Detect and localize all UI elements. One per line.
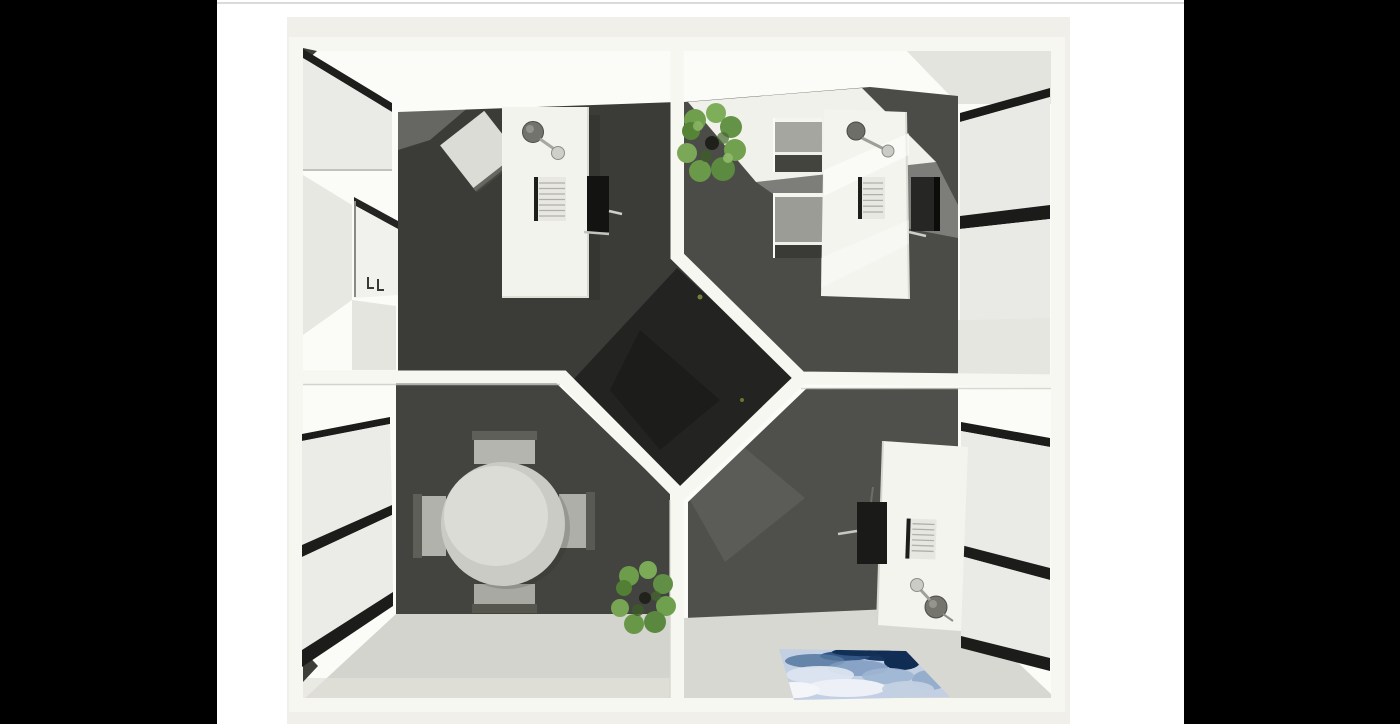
tr-lamp-base bbox=[847, 122, 865, 140]
tr-shelf2-underside bbox=[773, 245, 825, 258]
bl-plant-shadow-leaf-2 bbox=[651, 591, 661, 601]
tr-shelf1-underside bbox=[773, 155, 822, 172]
br-monitor bbox=[857, 502, 887, 564]
tl-lamp-head bbox=[552, 147, 565, 160]
bl-plant-shadow-leaf-1 bbox=[632, 604, 644, 616]
tr-plant-shadow-leaf-1 bbox=[700, 150, 712, 162]
tl-keyboard-keys bbox=[539, 183, 565, 216]
tl-monitor bbox=[587, 176, 609, 232]
center-core-speck-2 bbox=[740, 398, 744, 402]
tr-plant-leaf-6 bbox=[689, 160, 711, 182]
tl-keyboard-edge bbox=[534, 177, 538, 221]
center-core-speck-1 bbox=[698, 295, 703, 300]
bl-chair-right-back bbox=[586, 492, 595, 550]
floorplan-render bbox=[0, 0, 1400, 724]
br-keyboard-keys-row-6 bbox=[912, 551, 934, 552]
br-window-pane-1 bbox=[961, 431, 1050, 568]
bl-round-table-sheen bbox=[444, 466, 548, 566]
bl-plant-leaf-6 bbox=[624, 614, 644, 634]
tr-plant-pot bbox=[705, 136, 719, 150]
screenshot-root bbox=[0, 0, 1400, 724]
bl-plant-leaf-5 bbox=[644, 611, 666, 633]
br-keyboard-keys-row-2 bbox=[912, 529, 934, 530]
bl-chair-bottom-back bbox=[472, 604, 537, 613]
br-keyboard-keys-row-5 bbox=[912, 545, 934, 546]
tr-shelf2-mid-edge bbox=[773, 242, 825, 245]
bl-plant-leaf-2 bbox=[639, 561, 657, 579]
bl-plant-leaf-8 bbox=[616, 580, 632, 596]
tr-shelf2-top-edge bbox=[773, 193, 825, 197]
bl-plant-leaf-7 bbox=[611, 599, 629, 617]
br-keyboard-keys-row-1 bbox=[913, 524, 935, 525]
right-wall-shadow-mid bbox=[958, 316, 1050, 378]
br-lamp-head bbox=[911, 579, 924, 592]
tr-lamp-head bbox=[882, 145, 894, 157]
br-rug-light-4 bbox=[882, 681, 934, 697]
bl-plant-pot bbox=[639, 592, 651, 604]
bl-chair-left-back bbox=[413, 494, 422, 558]
bl-chair-top-seat bbox=[474, 440, 535, 464]
left-wall-shadow-lower bbox=[352, 300, 396, 370]
br-lamp-highlight bbox=[929, 600, 937, 608]
tr-plant-leaf-highlight-2 bbox=[693, 121, 703, 131]
tr-keyboard-edge bbox=[858, 177, 862, 219]
tr-shelf2-body bbox=[773, 197, 825, 242]
tr-plant-leaf-7 bbox=[677, 143, 697, 163]
tr-monitor-dark-edge bbox=[934, 177, 940, 231]
tr-plant-leaf-highlight-1 bbox=[723, 153, 733, 163]
tl-lamp-highlight bbox=[526, 125, 534, 133]
tr-shelf1-mid-edge bbox=[773, 152, 822, 155]
bl-chair-top-back bbox=[472, 431, 537, 440]
tr-shelf1-top-edge bbox=[773, 118, 822, 122]
tr-window-pane-2 bbox=[960, 219, 1050, 320]
br-keyboard-keys-row-4 bbox=[912, 540, 934, 541]
tr-shelf1-body bbox=[773, 122, 822, 152]
br-keyboard-keys-row-3 bbox=[912, 534, 934, 535]
